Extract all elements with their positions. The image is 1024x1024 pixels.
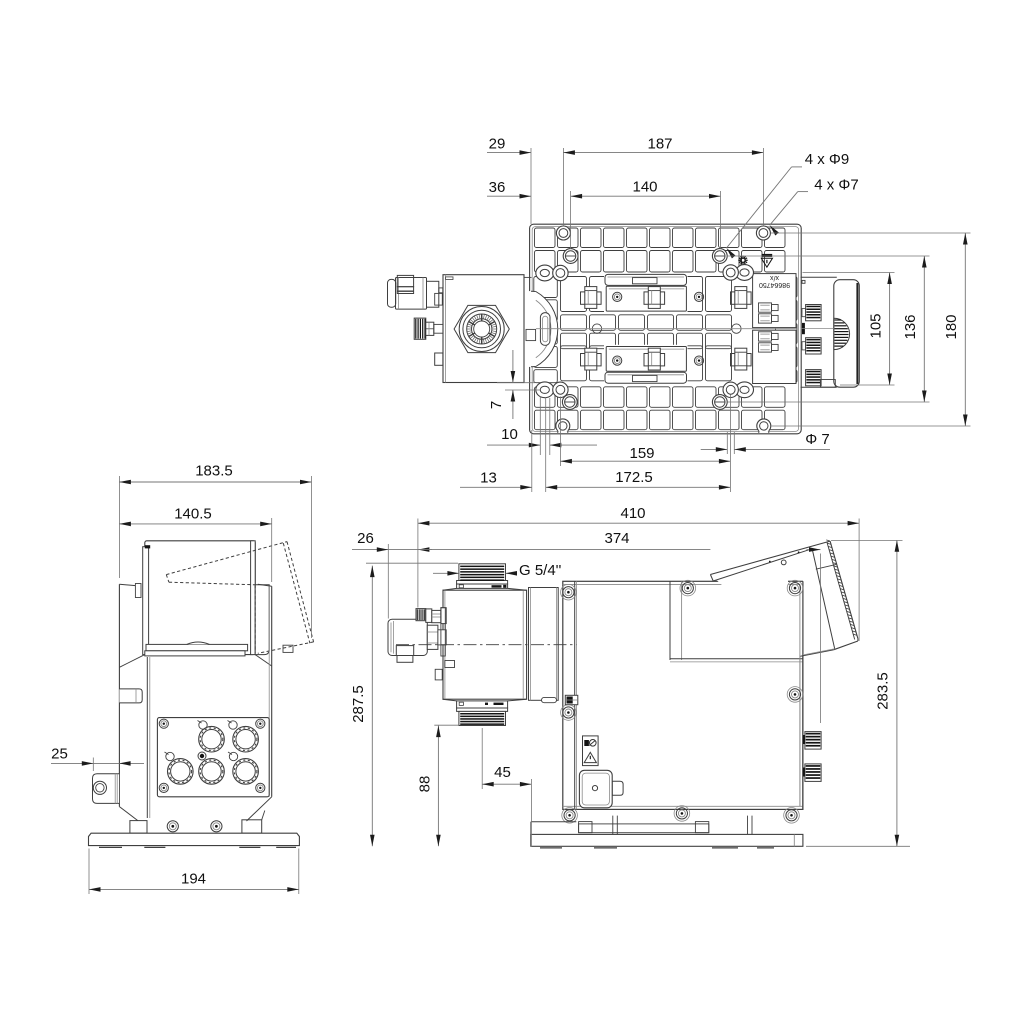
svg-text:13: 13	[480, 470, 497, 487]
svg-text:136: 136	[902, 314, 919, 339]
svg-text:G 5/4'': G 5/4''	[519, 562, 562, 579]
svg-text:29: 29	[489, 136, 506, 153]
svg-text:194: 194	[181, 871, 206, 888]
svg-text:374: 374	[604, 530, 629, 547]
svg-text:105: 105	[868, 313, 885, 338]
svg-text:4 x Φ7: 4 x Φ7	[814, 177, 859, 194]
svg-text:183.5: 183.5	[195, 463, 233, 480]
svg-text:172.5: 172.5	[615, 469, 653, 486]
svg-text:159: 159	[629, 445, 654, 462]
svg-text:187: 187	[647, 136, 672, 153]
svg-text:36: 36	[489, 179, 506, 196]
svg-text:88: 88	[417, 776, 434, 793]
svg-text:45: 45	[494, 764, 511, 781]
svg-text:10: 10	[501, 426, 518, 443]
svg-text:140.5: 140.5	[174, 506, 212, 523]
svg-text:98664750: 98664750	[759, 281, 790, 288]
svg-text:287.5: 287.5	[350, 685, 367, 723]
svg-text:283.5: 283.5	[875, 672, 892, 710]
svg-text:25: 25	[51, 746, 68, 763]
svg-text:140: 140	[632, 179, 657, 196]
svg-text:4 x Φ9: 4 x Φ9	[805, 151, 850, 168]
svg-text:26: 26	[357, 530, 374, 547]
svg-text:Φ 7: Φ 7	[805, 431, 829, 448]
svg-text:x/x: x/x	[770, 274, 779, 281]
svg-text:410: 410	[620, 505, 645, 522]
svg-text:180: 180	[943, 314, 960, 339]
svg-text:7: 7	[488, 401, 505, 409]
